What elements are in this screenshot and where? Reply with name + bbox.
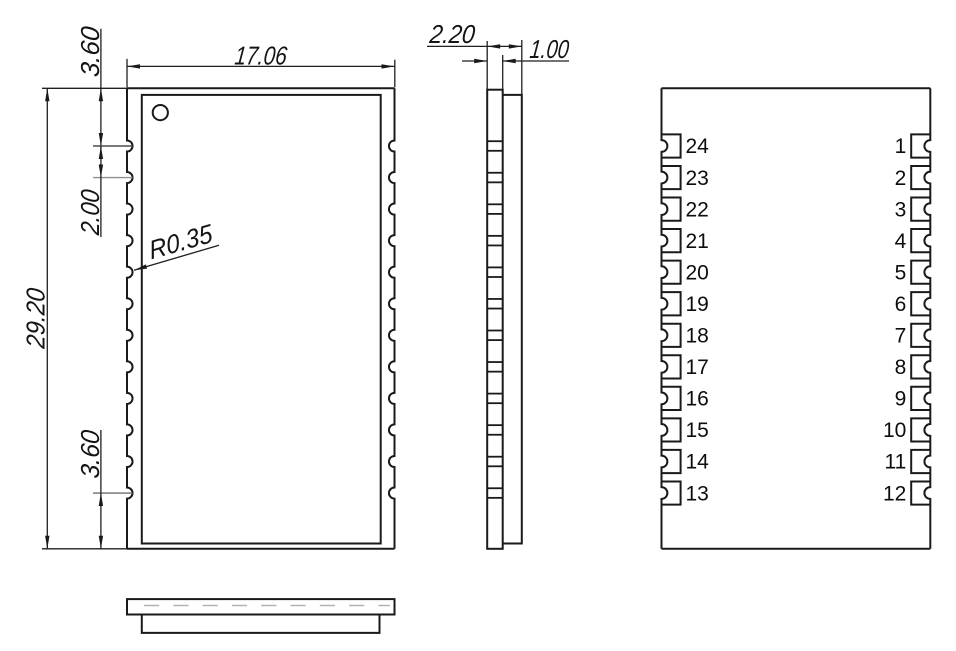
svg-text:2.20: 2.20 — [427, 19, 476, 49]
svg-text:3.60: 3.60 — [75, 24, 105, 78]
svg-text:8: 8 — [895, 356, 907, 379]
svg-text:4: 4 — [895, 230, 907, 253]
svg-text:6: 6 — [895, 293, 907, 316]
svg-text:9: 9 — [895, 388, 907, 411]
svg-text:24: 24 — [686, 135, 710, 158]
svg-text:17.06: 17.06 — [233, 41, 289, 71]
svg-text:2: 2 — [895, 167, 907, 190]
svg-text:11: 11 — [884, 451, 906, 474]
svg-text:20: 20 — [686, 261, 709, 284]
svg-text:5: 5 — [895, 261, 907, 284]
svg-text:R0.35: R0.35 — [147, 218, 215, 266]
svg-text:23: 23 — [686, 167, 709, 190]
svg-text:17: 17 — [686, 356, 709, 379]
svg-text:22: 22 — [686, 198, 709, 221]
svg-text:1.00: 1.00 — [528, 34, 571, 64]
svg-text:7: 7 — [895, 325, 907, 348]
svg-text:12: 12 — [883, 482, 906, 505]
svg-text:14: 14 — [686, 451, 710, 474]
svg-text:29.20: 29.20 — [21, 286, 51, 351]
svg-text:16: 16 — [686, 388, 709, 411]
svg-text:21: 21 — [686, 230, 709, 253]
svg-text:10: 10 — [883, 419, 906, 442]
svg-text:3: 3 — [895, 198, 907, 221]
svg-text:3.60: 3.60 — [75, 428, 105, 480]
svg-text:15: 15 — [686, 419, 709, 442]
svg-text:13: 13 — [686, 482, 709, 505]
svg-text:19: 19 — [686, 293, 709, 316]
svg-text:18: 18 — [686, 325, 709, 348]
svg-text:1: 1 — [895, 135, 907, 158]
svg-text:2.00: 2.00 — [75, 188, 105, 237]
